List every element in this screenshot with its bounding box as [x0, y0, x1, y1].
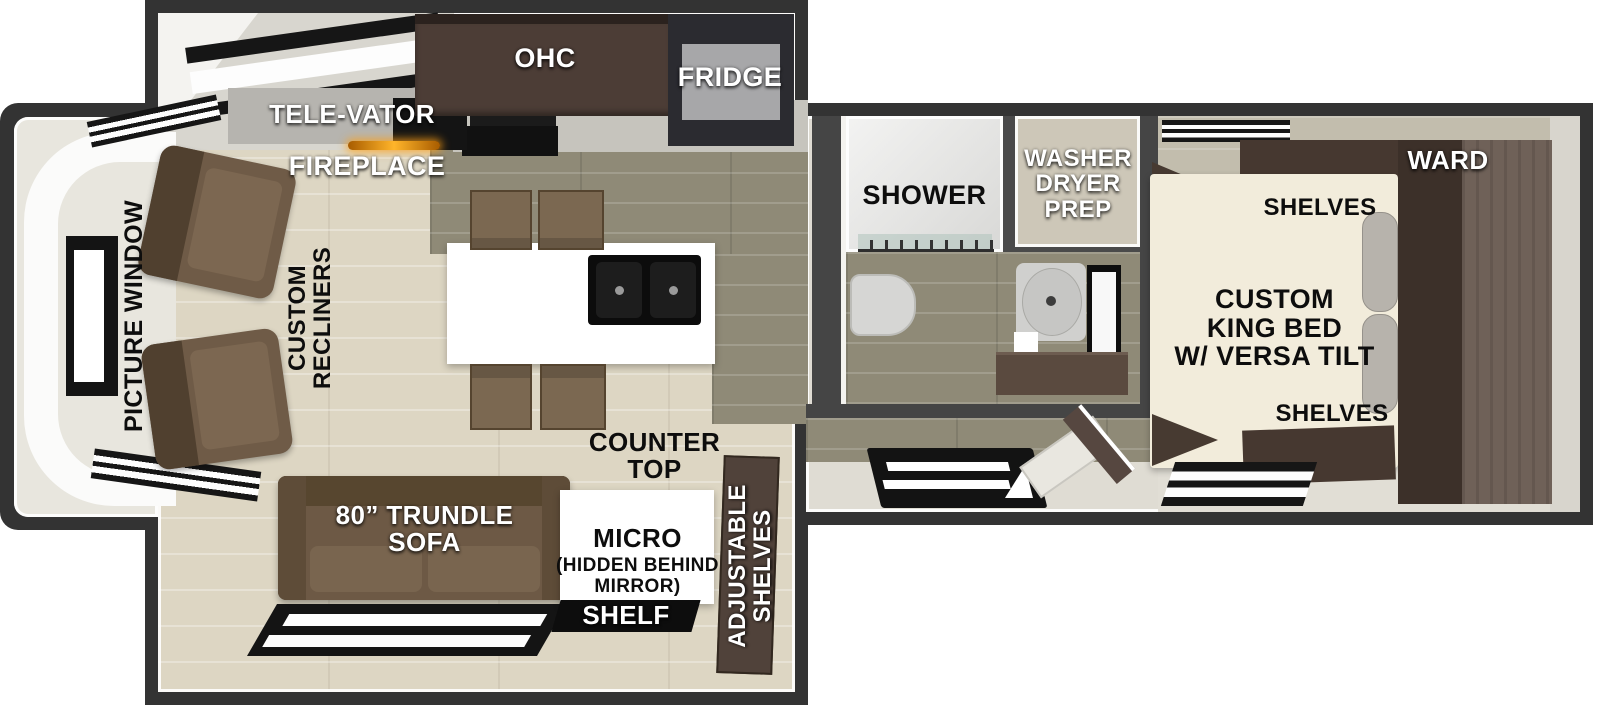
bedroom-window-bottom [1161, 462, 1317, 506]
picture-window-pane [74, 250, 104, 382]
vanity-counter [996, 352, 1128, 395]
toilet [850, 274, 916, 336]
wardrobe-side [1462, 140, 1552, 504]
recliner-2 [140, 327, 294, 471]
dining-chair-4 [540, 364, 606, 430]
entry-step-tread-2 [882, 480, 1010, 489]
picture-window-label: PICTURE WINDOW [119, 156, 149, 476]
recliner-2-seat [189, 341, 280, 451]
dining-chair-2 [538, 190, 604, 250]
shelf-label: SHELF [556, 600, 696, 632]
recliner-1-seat [186, 167, 284, 283]
sofa-window-pane-1 [282, 614, 547, 626]
cooktop [462, 126, 558, 156]
fridge-label: FRIDGE [664, 60, 796, 94]
dining-chair-3 [470, 364, 532, 430]
sofa-window [247, 604, 567, 656]
wardrobe-front [1398, 140, 1462, 504]
ward-label: WARD [1402, 146, 1494, 176]
king-bed-label: CUSTOM KING BED W/ VERSA TILT [1162, 278, 1387, 378]
shower-label: SHOWER [852, 180, 997, 210]
shower-curtain-rod [858, 240, 994, 252]
ohc-label: OHC [460, 40, 630, 76]
washer-dryer-prep-label: WASHER DRYER PREP [1022, 140, 1134, 228]
trundle-sofa-label: 80” TRUNDLE SOFA [292, 498, 557, 560]
kitchen-bath-wall [812, 116, 846, 418]
counter-top-label: COUNTER TOP [572, 424, 737, 488]
shelves-bottom-label: SHELVES [1262, 400, 1402, 428]
vanity-mirror-pane [1092, 272, 1116, 358]
entry-step-tread-1 [886, 462, 1010, 471]
shelves-top-label: SHELVES [1250, 194, 1390, 222]
sofa-window-pane-2 [262, 635, 531, 647]
vanity-sink-drain [1046, 296, 1056, 306]
bedroom-end-wall [1550, 116, 1580, 512]
bath-bottom-wall [806, 404, 1158, 418]
kitchen-walkway-column [712, 254, 808, 424]
micro-sub-label: (HIDDEN BEHIND MIRROR) [555, 554, 720, 598]
adjustable-shelves-label: ADJUSTABLE SHELVES [722, 466, 778, 666]
floorplan: TELE-VATOR OHC FRIDGE FIREPLACE PICTURE … [0, 0, 1600, 707]
fireplace-label: FIREPLACE [282, 150, 452, 182]
sink-drain-right [669, 286, 678, 295]
sink-drain-left [615, 286, 624, 295]
dining-chair-1 [470, 190, 532, 250]
entry-steps [867, 448, 1048, 508]
shower-closet-divider-wall [1003, 116, 1015, 252]
micro-label: MICRO [565, 524, 710, 554]
tele-vator-label: TELE-VATOR [252, 100, 452, 130]
fireplace-glow [348, 141, 440, 150]
bedroom-window-top [1162, 120, 1290, 142]
recliner-1 [136, 143, 298, 301]
custom-recliners-label: CUSTOM RECLINERS [281, 213, 339, 423]
